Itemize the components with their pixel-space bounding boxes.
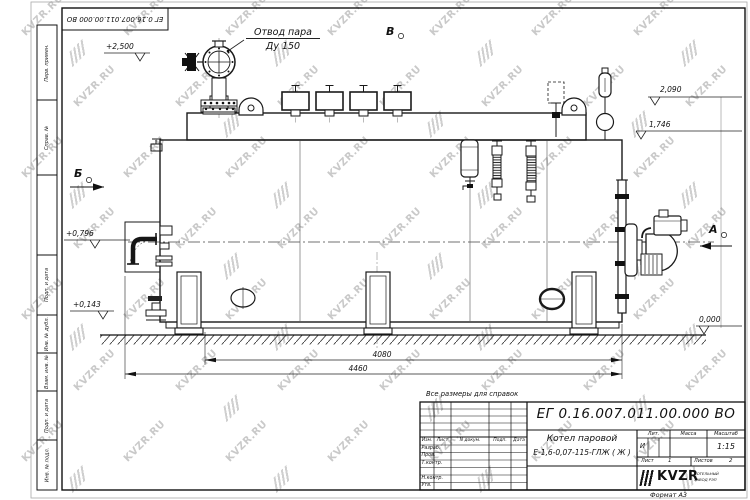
- margin-box-sprav-no: Справ. №: [37, 100, 57, 175]
- dimension-4460-label: 4460: [318, 365, 398, 373]
- burner: [625, 210, 687, 276]
- elevation-2090-label: 2,090: [660, 86, 681, 94]
- sheets-value: 2: [729, 459, 733, 465]
- format-note: Формат А3: [650, 492, 687, 499]
- product-name-line1: Котел паровой: [527, 435, 637, 444]
- margin-box-inv-podl: Инв. № подл.: [37, 440, 57, 490]
- kvzr-logo-text: KVZR: [657, 469, 699, 484]
- drawing-sheet: { "watermark": { "text": "KVZR.RU" }, "f…: [0, 0, 750, 500]
- elevation-0143-label: +0,143: [73, 301, 101, 309]
- view-label-b: Б: [74, 168, 82, 179]
- burner-motor: [654, 216, 681, 235]
- scale-value: 1:15: [707, 443, 745, 451]
- steam-outlet-callout-line1: Отвод пара: [246, 28, 320, 39]
- top-doc-number: ЕГ 0.16.007.011.00.000 ВО: [62, 8, 168, 30]
- row-label-razrab: Разраб.: [422, 447, 441, 452]
- boiler-body: [160, 113, 622, 328]
- elevation-0000-label: 0,000: [699, 316, 720, 324]
- sheet-label: Лист: [641, 459, 654, 464]
- lit-value: И: [637, 443, 648, 450]
- lit-header: Лит.: [637, 432, 670, 437]
- dashed-reserve-box: [548, 82, 564, 103]
- col-header-izm: Изм.: [420, 439, 434, 444]
- product-name-line2: Е-1,6-0,07-115-ГЛЖ ( Ж ): [527, 449, 637, 457]
- sheets-label: Листов: [694, 459, 713, 464]
- elevation-1746-label: 1,746: [649, 121, 670, 129]
- col-header-data: Дата: [511, 439, 527, 444]
- siphon-loop: [597, 114, 614, 131]
- view-label-a: А: [709, 224, 718, 235]
- front-fittings: [125, 139, 172, 320]
- margin-box-podp-data-1: Подп. и дата: [37, 255, 57, 315]
- col-header-ndoc: N докум.: [451, 439, 489, 444]
- sheet-value: 1: [668, 459, 672, 465]
- callout-leader: [227, 40, 244, 52]
- gauge-glass-1: [492, 140, 502, 200]
- col-header-list: Лист: [434, 439, 451, 444]
- title-doc-number: ЕГ 0.16.007.011.00.000 ВО: [527, 408, 745, 422]
- safety-valves: [282, 86, 411, 125]
- elevation-2500-label: +2,500: [106, 43, 134, 51]
- col-header-podp: Подп.: [489, 439, 511, 444]
- dimension-4080-label: 4080: [342, 351, 422, 359]
- view-arrows: [70, 33, 732, 249]
- row-label-nkontr: Н.контр.: [422, 477, 443, 482]
- view-label-v: В: [386, 26, 394, 37]
- row-label-prov: Пров.: [422, 454, 436, 459]
- margin-box-inv-dubl: Инв. № дубл.: [37, 315, 57, 353]
- row-label-tkontr: Т.контр.: [422, 462, 443, 467]
- reference-note: Все размеры для справок: [426, 391, 518, 398]
- steam-outlet-callout-line2: Ду 150: [246, 42, 320, 52]
- margin-box-vzam-inv: Взам. инв. №: [37, 353, 57, 391]
- elevation-0796-label: +0,796: [66, 230, 94, 238]
- ground: [100, 335, 706, 345]
- kvzr-tagline-2: ЗАВОД РЭП: [694, 478, 717, 482]
- margin-box-empty: [37, 175, 57, 255]
- mass-header: Масса: [670, 432, 707, 437]
- kvzr-tagline-1: КОТЕЛЬНЫЙ: [694, 472, 719, 476]
- row-label-utv: Утв.: [422, 484, 432, 489]
- margin-box-perv-primen: Перв. примен.: [37, 25, 57, 100]
- level-gauges: [461, 140, 536, 202]
- gauge-glass-2: [526, 140, 536, 202]
- scale-header: Масштаб: [707, 432, 745, 437]
- margin-box-podp-data-2: Подп. и дата: [37, 391, 57, 440]
- sample-cooler: [461, 140, 478, 177]
- burner-gas-elbow: [133, 239, 157, 264]
- drawing-linework: [0, 0, 750, 500]
